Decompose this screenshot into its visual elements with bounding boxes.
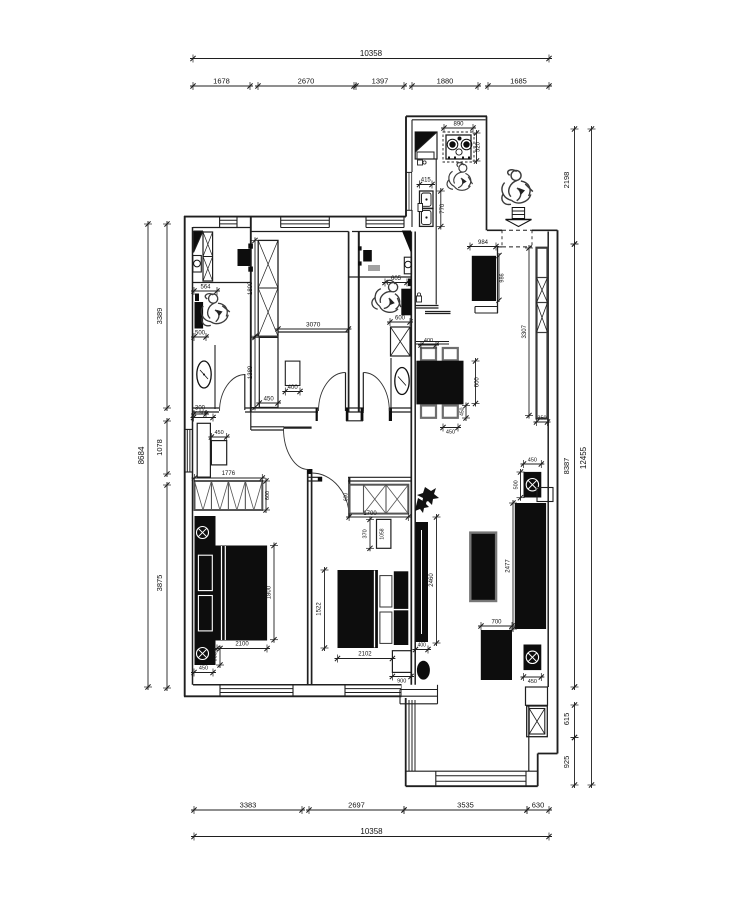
svg-text:3875: 3875 (155, 575, 164, 592)
svg-text:1078: 1078 (155, 439, 164, 456)
svg-text:1800: 1800 (248, 281, 254, 295)
svg-text:986: 986 (500, 273, 506, 282)
svg-text:1880: 1880 (437, 77, 454, 86)
svg-text:700: 700 (491, 620, 502, 626)
svg-text:2477: 2477 (506, 559, 512, 573)
svg-text:400: 400 (424, 338, 433, 344)
svg-text:630: 630 (532, 801, 545, 810)
svg-text:564: 564 (200, 285, 211, 291)
svg-text:1800: 1800 (267, 585, 273, 599)
svg-text:3307: 3307 (522, 324, 528, 338)
svg-text:925: 925 (562, 756, 571, 769)
svg-text:1522: 1522 (317, 602, 323, 616)
svg-text:1700: 1700 (363, 511, 377, 517)
svg-text:600: 600 (395, 316, 406, 322)
svg-text:450: 450 (460, 407, 466, 416)
svg-text:3383: 3383 (240, 801, 257, 810)
svg-text:2697: 2697 (348, 801, 365, 810)
svg-text:984: 984 (478, 240, 489, 246)
svg-text:2670: 2670 (298, 77, 315, 86)
svg-text:8684: 8684 (137, 446, 146, 464)
svg-text:500: 500 (195, 331, 206, 337)
svg-text:600: 600 (475, 377, 481, 388)
svg-text:350: 350 (537, 416, 546, 422)
svg-text:450: 450 (214, 430, 223, 436)
svg-text:400: 400 (418, 643, 427, 649)
svg-text:1776: 1776 (222, 471, 236, 477)
svg-text:3070: 3070 (306, 322, 321, 329)
svg-text:12455: 12455 (579, 446, 588, 469)
svg-text:3535: 3535 (457, 801, 474, 810)
svg-text:615: 615 (562, 713, 571, 726)
svg-text:370: 370 (363, 529, 369, 538)
svg-text:900: 900 (213, 652, 219, 661)
svg-text:890: 890 (453, 122, 464, 128)
svg-text:400: 400 (288, 385, 299, 391)
svg-text:10358: 10358 (360, 49, 383, 58)
svg-text:300: 300 (199, 411, 208, 417)
svg-text:2102: 2102 (358, 652, 372, 658)
svg-text:600: 600 (265, 491, 271, 500)
svg-text:450: 450 (264, 397, 275, 403)
svg-text:1058: 1058 (380, 528, 386, 539)
svg-text:3389: 3389 (155, 308, 164, 325)
svg-text:450: 450 (528, 458, 537, 464)
svg-text:520: 520 (476, 141, 482, 152)
svg-text:770: 770 (440, 203, 446, 214)
svg-text:1397: 1397 (372, 77, 389, 86)
svg-text:450: 450 (446, 430, 455, 436)
svg-text:600: 600 (344, 493, 350, 502)
svg-text:2198: 2198 (562, 172, 571, 189)
svg-text:1685: 1685 (510, 77, 527, 86)
svg-text:500: 500 (514, 480, 520, 489)
svg-text:1678: 1678 (213, 77, 230, 86)
svg-text:2100: 2100 (235, 642, 249, 648)
svg-text:10358: 10358 (360, 827, 383, 836)
svg-text:2460: 2460 (429, 573, 435, 587)
svg-text:415: 415 (421, 178, 432, 184)
svg-text:8387: 8387 (562, 458, 571, 475)
svg-text:1389: 1389 (248, 365, 254, 379)
svg-text:450: 450 (528, 679, 537, 685)
svg-text:450: 450 (199, 666, 208, 672)
svg-text:900: 900 (397, 679, 406, 685)
